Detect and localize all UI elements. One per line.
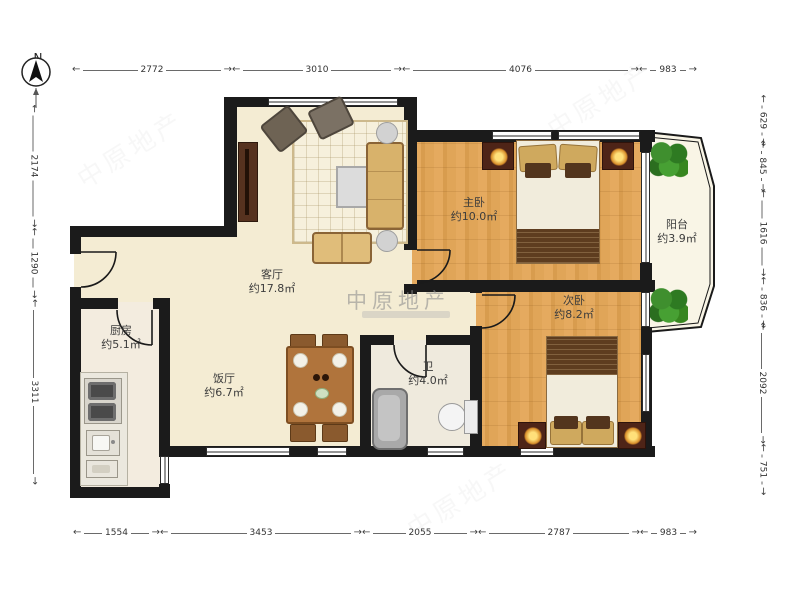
watermark-subline: [362, 311, 450, 318]
balcony-label: 阳台约3.9㎡: [657, 218, 697, 246]
bathroom-label: 卫约4.0㎡: [408, 360, 448, 388]
living-room-label: 客厅约17.8㎡: [249, 268, 296, 296]
master-bedroom-label: 主卧约10.0㎡: [451, 196, 498, 224]
dining-room-label: 饭厅约6.7㎡: [204, 372, 244, 400]
kitchen-label: 厨房约5.1㎡: [101, 324, 141, 352]
second-bedroom-label: 次卧约8.2㎡: [554, 294, 594, 322]
floor-plan: 客厅约17.8㎡ 饭厅约6.7㎡ 厨房约5.1㎡ 卫约4.0㎡ 主卧约10.0㎡…: [0, 0, 800, 600]
compass: N: [14, 52, 62, 124]
compass-icon: [14, 52, 58, 110]
